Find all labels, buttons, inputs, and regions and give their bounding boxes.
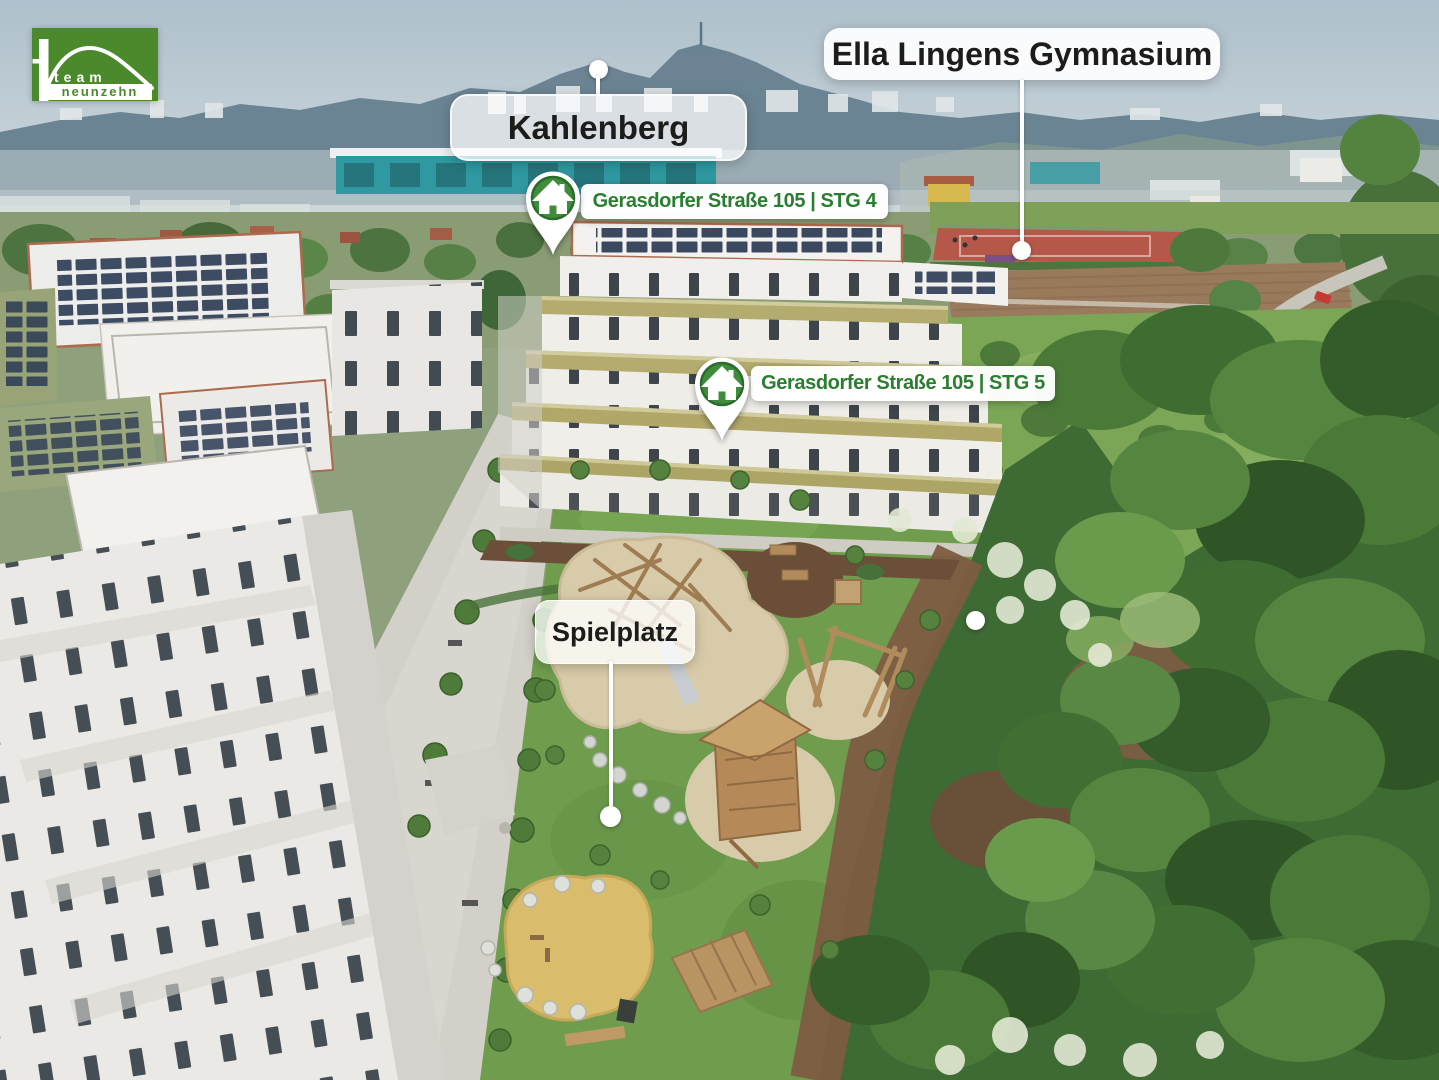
logo-text-neunzehn: neunzehn <box>48 84 152 100</box>
spielplatz-label: Spielplatz <box>535 600 695 664</box>
gymnasium-marker-dot <box>1012 241 1031 260</box>
aerial-photo <box>0 0 1439 1080</box>
gerasdorfer-strasse-105-stg5-label: Gerasdorfer Straße 105 | STG 5 <box>751 366 1055 401</box>
team-neunzehn-logo: team neunzehn <box>32 28 158 101</box>
kahlenberg-connector-line <box>596 76 600 96</box>
spielplatz-connector-line <box>609 661 613 808</box>
forest-edge-marker-dot <box>966 611 985 630</box>
gerasdorfer-strasse-105-stg4-label: Gerasdorfer Straße 105 | STG 4 <box>581 184 888 219</box>
map-pin-icon-stg5 <box>691 353 753 445</box>
left-apartment-complex <box>0 232 484 560</box>
ella-lingens-gymnasium-label: Ella Lingens Gymnasium <box>824 28 1220 80</box>
map-pin-icon-stg4 <box>522 167 584 259</box>
aerial-photo-page: team neunzehn Kahlenberg Ella Lingens Gy… <box>0 0 1439 1080</box>
gymnasium-connector-line <box>1020 80 1024 243</box>
kahlenberg-label: Kahlenberg <box>450 94 747 161</box>
logo-text-team: team <box>54 70 107 84</box>
spielplatz-marker-dot <box>600 806 621 827</box>
foreground-apartment-facade <box>0 510 446 1080</box>
